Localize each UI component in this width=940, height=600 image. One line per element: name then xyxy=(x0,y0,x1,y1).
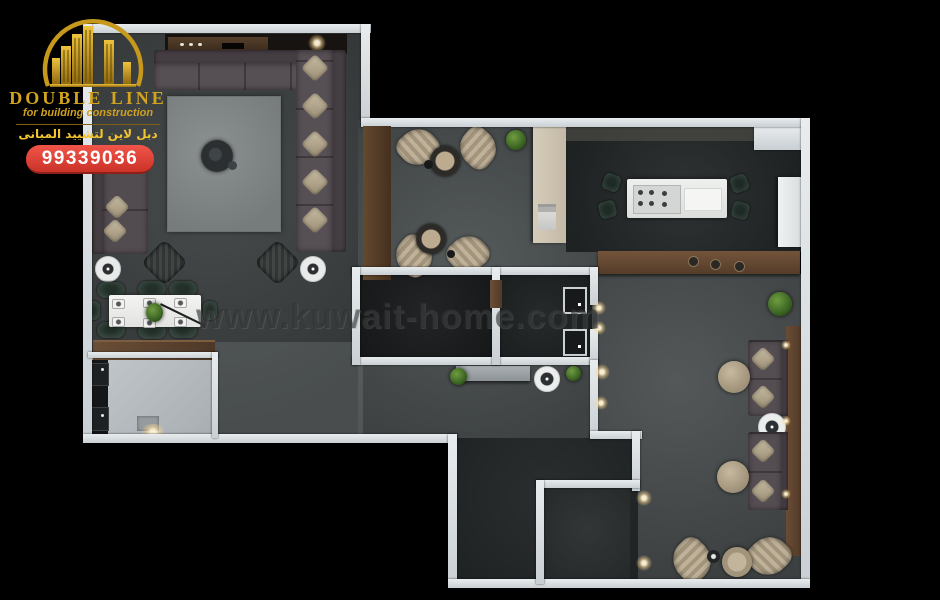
wall-light xyxy=(781,489,791,499)
wall-light xyxy=(636,555,652,571)
brand-name: DOUBLE LINE xyxy=(2,88,174,109)
wall-light xyxy=(594,396,608,410)
company-logo: DOUBLE LINE for building construction دب… xyxy=(0,0,190,195)
buildings-under-arch-icon xyxy=(38,12,148,90)
wall-light xyxy=(636,490,652,506)
phone-badge: 99339036 xyxy=(26,145,154,174)
wall-light xyxy=(594,364,610,380)
brand-divider xyxy=(16,124,160,125)
floor-plan-render: www.kuwait-home.com xyxy=(0,0,940,600)
brand-tagline-arabic: دبل لاين لتشييد المبانى xyxy=(2,127,174,141)
wall-light xyxy=(781,340,791,350)
brand-tagline: for building construction xyxy=(2,107,174,119)
watermark: www.kuwait-home.com xyxy=(196,297,696,337)
wall-light xyxy=(781,416,791,426)
